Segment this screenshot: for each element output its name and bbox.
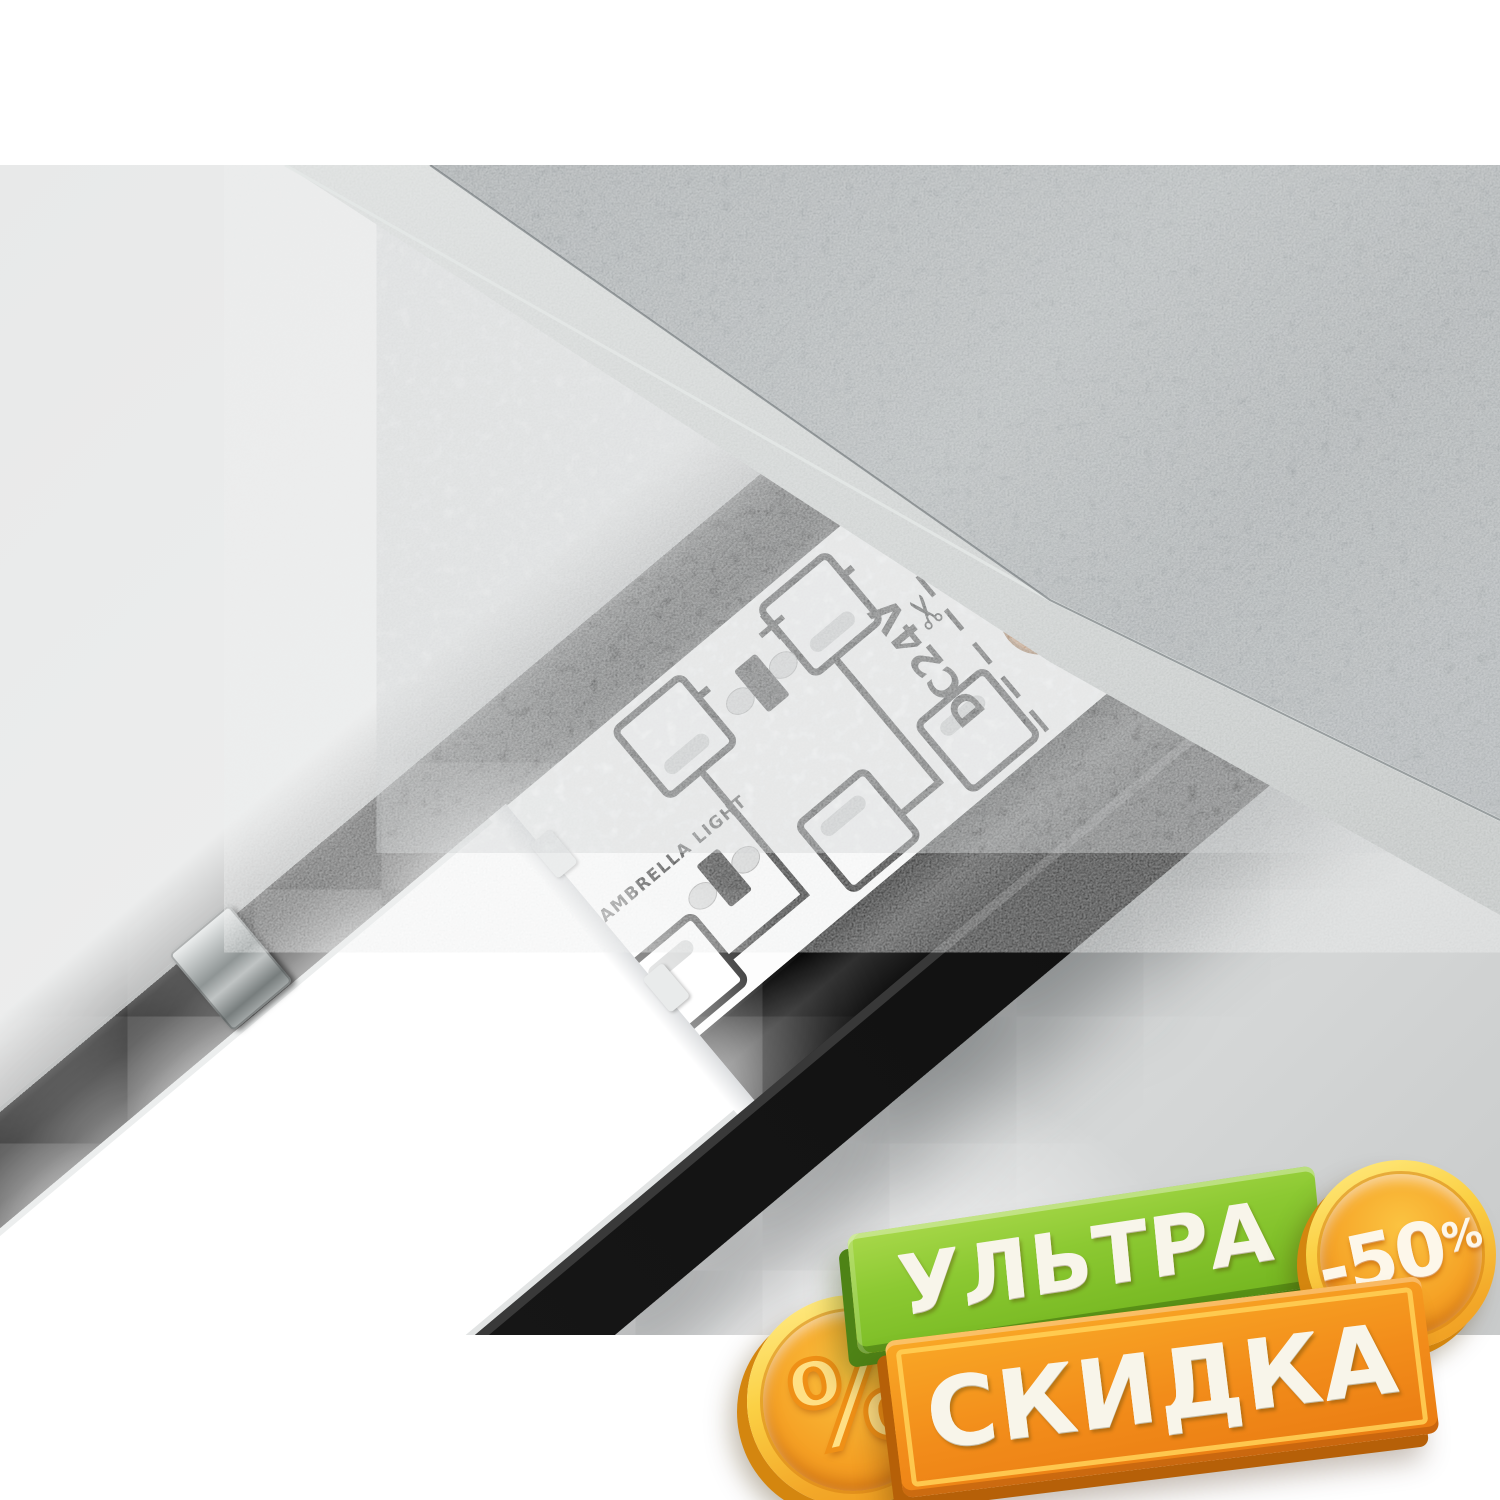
- promo-badge: % УЛЬТРА -50% СКИДКА: [0, 0, 1500, 1500]
- discount-percent-suffix: %: [1438, 1209, 1487, 1262]
- promo-line2-text: СКИДКА: [921, 1311, 1403, 1464]
- product-photo-canvas: 151 151 AMBRELLA LIGHT D: [0, 0, 1500, 1500]
